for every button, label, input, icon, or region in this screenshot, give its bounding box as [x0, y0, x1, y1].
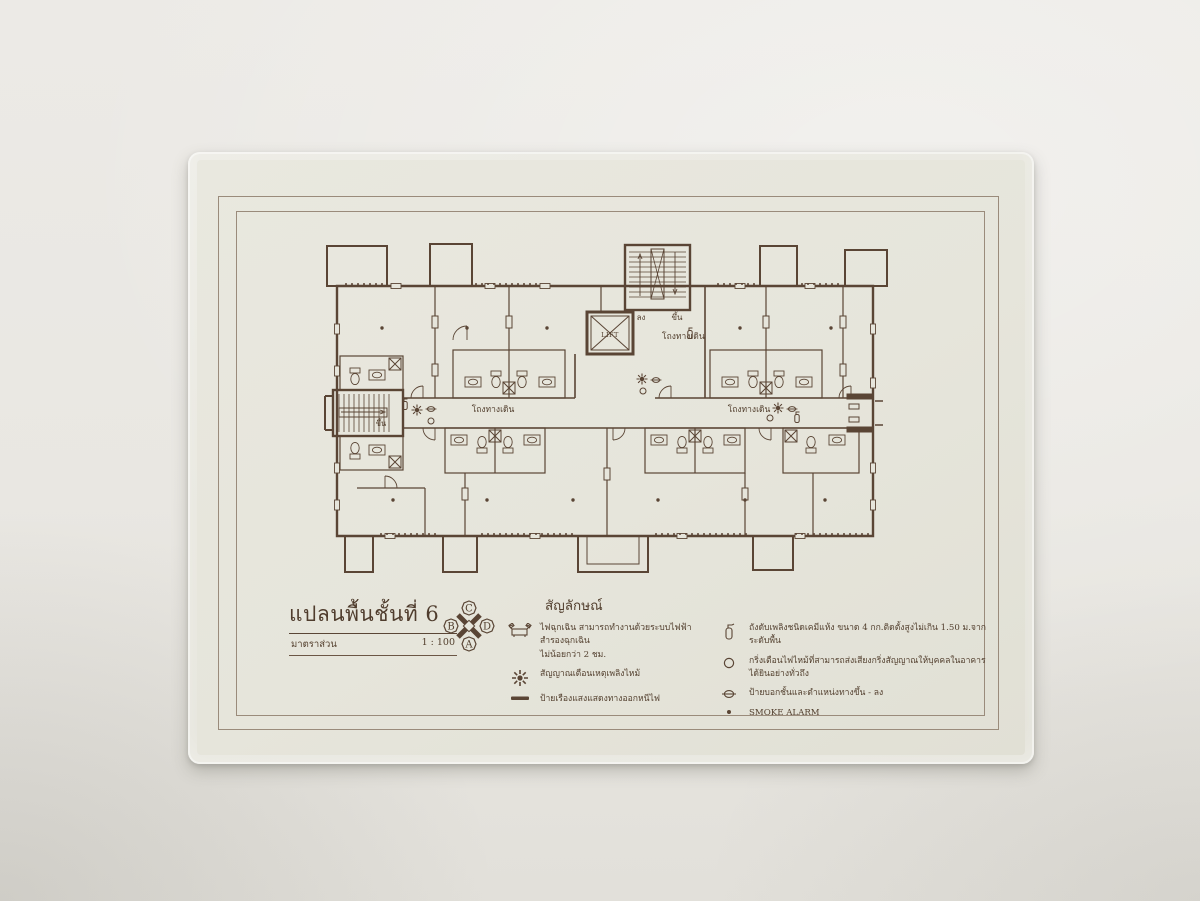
legend-text-line2: ไม่น้อยกว่า 2 ชม.: [540, 649, 700, 662]
corridor-left-label: โถงทางเดิน: [472, 404, 515, 415]
legend-item-emergency-light: ไฟฉุกเฉิน สามารถทำงานด้วยระบบไฟฟ้าสำรองฉ…: [507, 622, 700, 662]
fire-alarm-signal-icon: [507, 668, 533, 687]
compass-letter-left: B: [447, 622, 454, 633]
smoke-alarm-dot-icon: [716, 707, 742, 716]
floor-plan: LIFT ลง ขึ้น ขึ้น โถงทางเดิน โถงทางเดิน …: [321, 238, 889, 590]
legend-item-fire-alarm-signal: สัญญาณเตือนเหตุเพลิงไหม้: [507, 668, 700, 687]
laminated-sheet: LIFT ลง ขึ้น ขึ้น โถงทางเดิน โถงทางเดิน …: [188, 152, 1034, 764]
compass-logo: C B D A: [440, 597, 498, 655]
compass-letter-right: D: [483, 622, 491, 633]
compass-letter-top: C: [465, 604, 473, 615]
legend-text: ป้ายบอกชั้นและตำแหน่งทางขึ้น - ลง: [749, 687, 883, 700]
floor-direction-sign-icon: [716, 687, 742, 700]
legend-item-floor-direction-sign: ป้ายบอกชั้นและตำแหน่งทางขึ้น - ลง: [716, 687, 987, 700]
legend-text: สัญญาณเตือนเหตุเพลิงไหม้: [540, 668, 640, 681]
emergency-light-icon: [507, 622, 533, 639]
stair-down-label: ลง: [637, 313, 646, 322]
scale-label: มาตราส่วน: [291, 637, 337, 652]
left-stair-up-label: ขึ้น: [376, 418, 386, 428]
paper: LIFT ลง ขึ้น ขึ้น โถงทางเดิน โถงทางเดิน …: [197, 160, 1025, 755]
legend-text: SMOKE ALARM: [749, 707, 820, 720]
page-title: แปลนพื้นชั้นที่ 6: [289, 598, 457, 631]
legend-text: ป้ายเรืองแสงแสดงทางออกหนีไฟ: [540, 693, 660, 706]
title-block: แปลนพื้นชั้นที่ 6 มาตราส่วน 1 : 100: [289, 598, 457, 656]
legend-item-alarm-bell: กริ่งเตือนไฟไหม้ที่สามารถส่งเสียงกริ่งสั…: [716, 655, 987, 682]
legend-text: ถังดับเพลิงชนิดเคมีแห้ง ขนาด 4 กก.ติดตั้…: [749, 622, 987, 649]
wall-background: LIFT ลง ขึ้น ขึ้น โถงทางเดิน โถงทางเดิน …: [0, 0, 1200, 901]
legend-item-exit-glow-sign: ป้ายเรืองแสงแสดงทางออกหนีไฟ: [507, 693, 700, 706]
legend-text: กริ่งเตือนไฟไหม้ที่สามารถส่งเสียงกริ่งสั…: [749, 655, 987, 682]
scale-rule: [289, 655, 457, 656]
legend-item-fire-extinguisher: ถังดับเพลิงชนิดเคมีแห้ง ขนาด 4 กก.ติดตั้…: [716, 622, 987, 649]
legend-heading: สัญลักษณ์: [545, 594, 987, 616]
lift-label: LIFT: [601, 331, 619, 339]
exit-glow-sign-icon: [507, 693, 533, 702]
corridor-right-label: โถงทางเดิน: [728, 404, 771, 415]
legend-item-smoke-alarm: SMOKE ALARM: [716, 707, 987, 720]
fire-extinguisher-icon: [716, 622, 742, 641]
compass-letter-bottom: A: [464, 640, 473, 651]
alarm-bell-icon: [716, 655, 742, 670]
stair-up-label: ขึ้น: [672, 311, 683, 322]
legend: สัญลักษณ์: [507, 594, 987, 726]
floor-plan-svg: LIFT ลง ขึ้น ขึ้น โถงทางเดิน โถงทางเดิน …: [321, 238, 889, 590]
legend-text: ไฟฉุกเฉิน สามารถทำงานด้วยระบบไฟฟ้าสำรองฉ…: [540, 623, 692, 646]
corridor-center-label: โถงทางเดิน: [662, 331, 705, 342]
